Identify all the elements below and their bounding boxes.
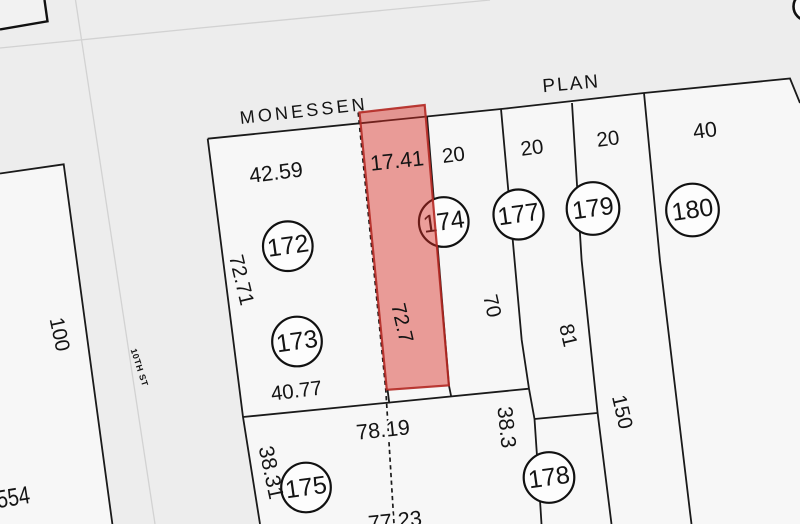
svg-text:172: 172 xyxy=(265,229,310,263)
svg-text:554: 554 xyxy=(0,481,32,513)
svg-text:20: 20 xyxy=(595,126,620,152)
svg-text:38.3: 38.3 xyxy=(492,405,520,449)
svg-text:177: 177 xyxy=(496,198,541,232)
svg-text:173: 173 xyxy=(274,325,319,359)
svg-text:20: 20 xyxy=(441,142,466,168)
svg-text:40: 40 xyxy=(692,117,719,144)
svg-text:70: 70 xyxy=(478,292,505,319)
svg-text:180: 180 xyxy=(670,193,715,227)
svg-text:20: 20 xyxy=(519,135,545,161)
svg-text:178: 178 xyxy=(526,461,571,495)
svg-text:175: 175 xyxy=(283,471,328,505)
svg-text:179: 179 xyxy=(570,192,615,226)
